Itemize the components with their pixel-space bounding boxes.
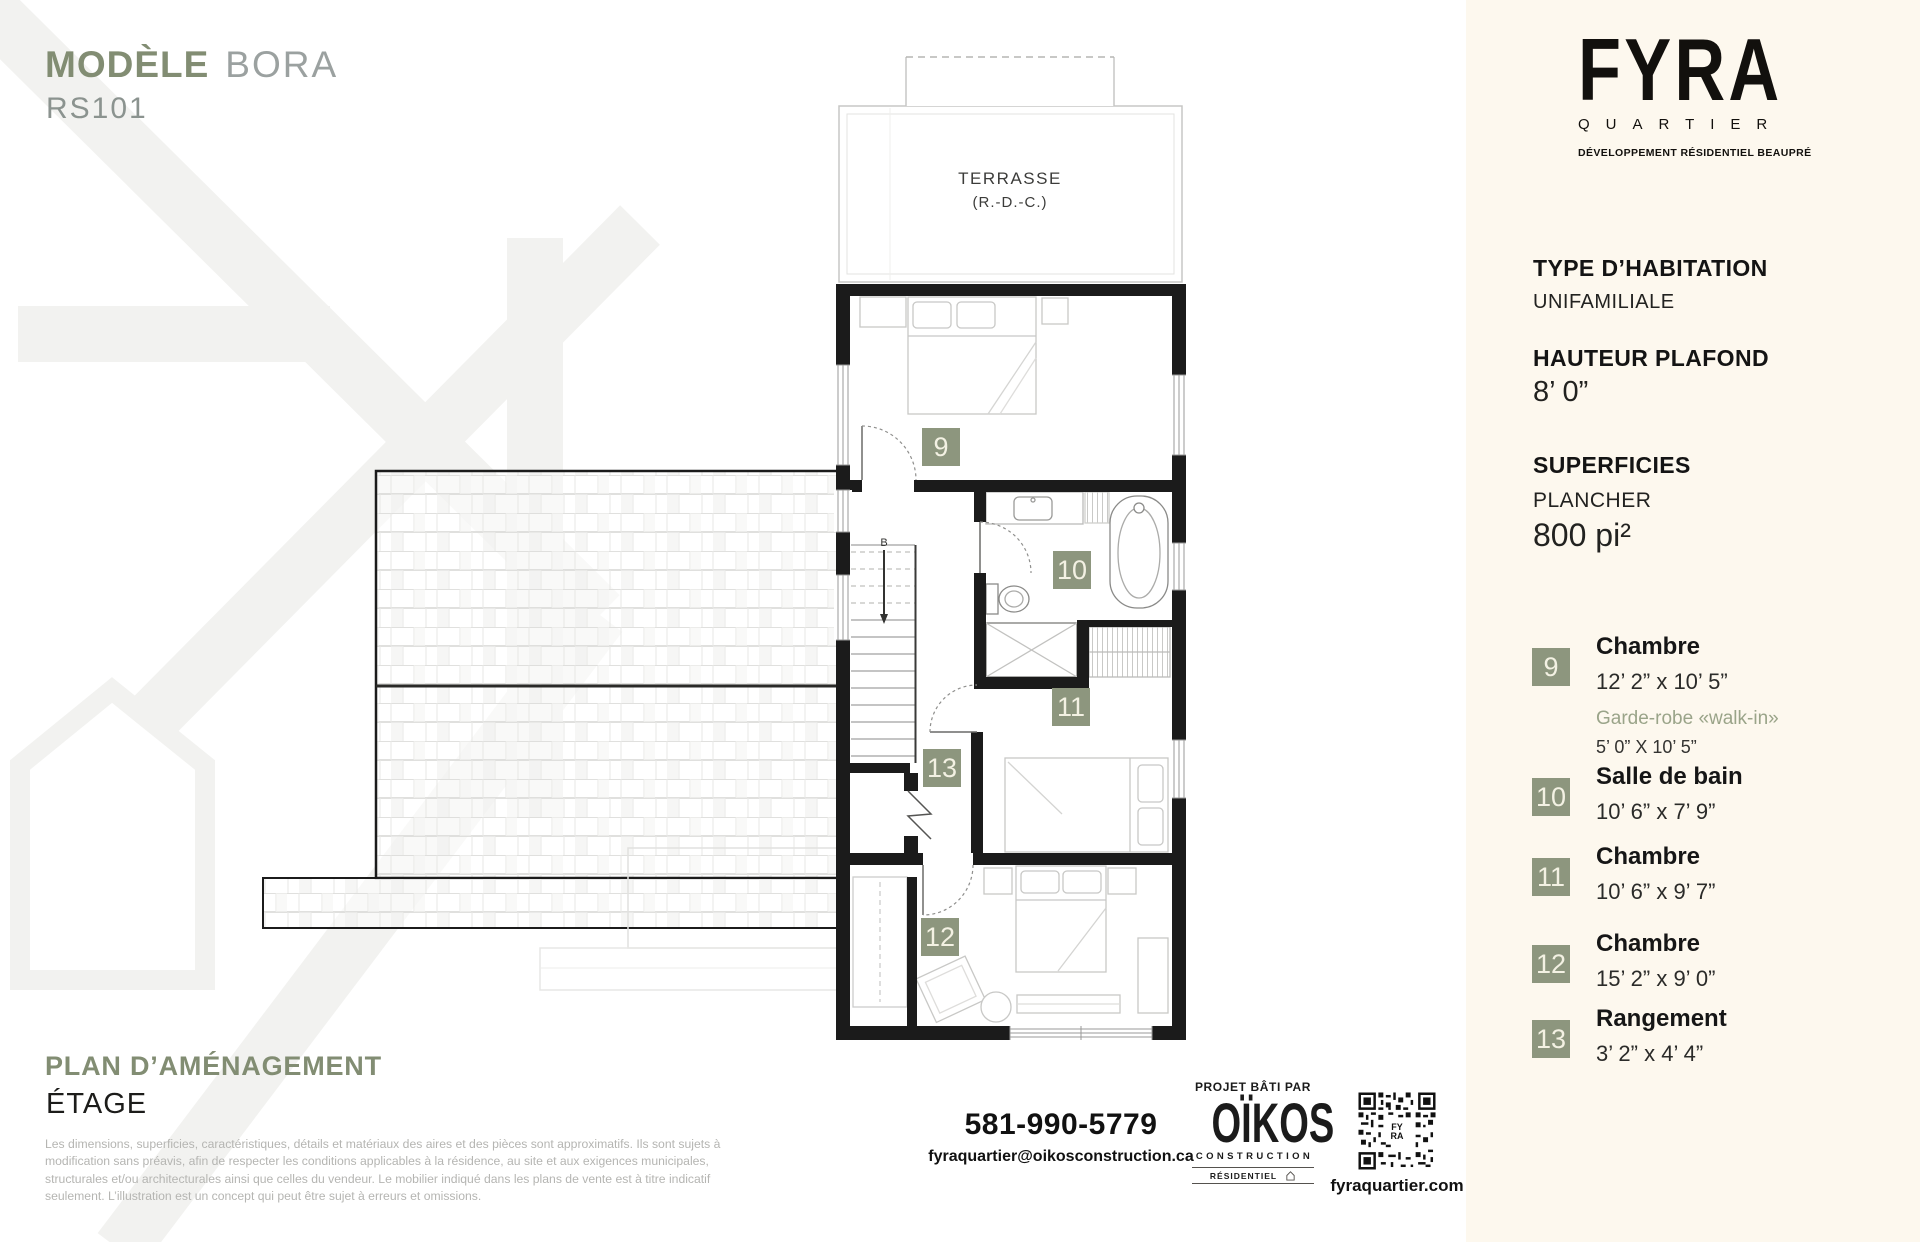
builder-tag-row: RÉSIDENTIEL (1192, 1167, 1314, 1184)
legend-row-11: 11 Chambre 10’ 6” x 9’ 7” (1532, 858, 1715, 905)
brand-logo: FYRA QUARTIER DÉVELOPPEMENT RÉSIDENTIEL … (1578, 26, 1818, 159)
builder-name: OÏKOS (1212, 1096, 1295, 1149)
stairs-direction-label: B (880, 537, 887, 549)
brand-name: FYRA (1578, 26, 1770, 114)
builder-logo: PROJET BÂTI PAR OÏKOS CONSTRUCTION RÉSID… (1192, 1080, 1314, 1184)
areas-title: SUPERFICIES (1533, 452, 1691, 479)
legend-name: Salle de bain (1596, 763, 1743, 791)
legend-dims: 3’ 2” x 4’ 4” (1596, 1041, 1727, 1067)
builder-tag: RÉSIDENTIEL (1210, 1171, 1277, 1181)
svg-text:10: 10 (1057, 555, 1087, 585)
svg-text:RA: RA (1391, 1131, 1404, 1141)
legend-extra-name: Garde-robe «walk-in» (1596, 708, 1779, 730)
legend-name: Chambre (1596, 843, 1715, 871)
svg-text:9: 9 (933, 432, 948, 462)
legend-row-10: 10 Salle de bain 10’ 6” x 7’ 9” (1532, 778, 1743, 825)
plan-subtitle: ÉTAGE (46, 1088, 147, 1121)
terrasse-label: TERRASSE (958, 169, 1062, 188)
disclaimer-text: Les dimensions, superficies, caractérist… (45, 1136, 759, 1205)
legend-name: Rangement (1596, 1005, 1727, 1033)
legend-row-13: 13 Rangement 3’ 2” x 4’ 4” (1532, 1020, 1727, 1067)
terrasse: TERRASSE (R.-D.-C.) (839, 57, 1182, 282)
floor-value: 800 pi² (1533, 517, 1631, 554)
legend-name: Chambre (1596, 930, 1715, 958)
brand-tagline: DÉVELOPPEMENT RÉSIDENTIEL BEAUPRÉ (1578, 147, 1818, 159)
phone-number[interactable]: 581-990-5779 (908, 1108, 1214, 1142)
svg-text:11: 11 (1057, 692, 1085, 722)
legend-badge-12: 12 (1532, 945, 1570, 983)
svg-text:13: 13 (927, 753, 957, 783)
type-title: TYPE D’HABITATION (1533, 255, 1768, 282)
model-header: MODÈLE BORA (45, 44, 338, 86)
type-value: UNIFAMILIALE (1533, 291, 1675, 314)
legend-extra-dims: 5’ 0” X 10’ 5” (1596, 737, 1779, 758)
plan-title: PLAN D’AMÉNAGEMENT (45, 1051, 382, 1082)
model-code: RS101 (46, 92, 148, 126)
legend-name: Chambre (1596, 633, 1779, 661)
model-label: MODÈLE (45, 44, 209, 86)
legend-dims: 12’ 2” x 10’ 5” (1596, 669, 1779, 695)
terrasse-sublabel: (R.-D.-C.) (973, 194, 1048, 211)
ceiling-value: 8’ 0” (1533, 376, 1588, 409)
legend-dims: 10’ 6” x 9’ 7” (1596, 879, 1715, 905)
legend-badge-10: 10 (1532, 778, 1570, 816)
floor-label: PLANCHER (1533, 489, 1651, 513)
ceiling-title: HAUTEUR PLAFOND (1533, 345, 1769, 372)
email-address[interactable]: fyraquartier@oikosconstruction.ca (908, 1148, 1214, 1166)
plan-sheet: TERRASSE (R.-D.-C.) (0, 0, 1920, 1242)
website-url[interactable]: fyraquartier.com (1322, 1176, 1472, 1196)
svg-text:12: 12 (925, 922, 955, 952)
legend-badge-13: 13 (1532, 1020, 1570, 1058)
legend-row-9: 9 Chambre 12’ 2” x 10’ 5” Garde-robe «wa… (1532, 648, 1779, 758)
legend-row-12: 12 Chambre 15’ 2” x 9’ 0” (1532, 945, 1715, 992)
house-icon (1285, 1170, 1296, 1181)
legend-badge-11: 11 (1532, 858, 1570, 896)
qr-code[interactable]: FY RA (1356, 1090, 1438, 1172)
legend-dims: 10’ 6” x 7’ 9” (1596, 799, 1743, 825)
legend-badge-9: 9 (1532, 648, 1570, 686)
contact-block: 581-990-5779 fyraquartier@oikosconstruct… (908, 1108, 1214, 1166)
legend-dims: 15’ 2” x 9’ 0” (1596, 966, 1715, 992)
model-name: BORA (225, 44, 338, 86)
